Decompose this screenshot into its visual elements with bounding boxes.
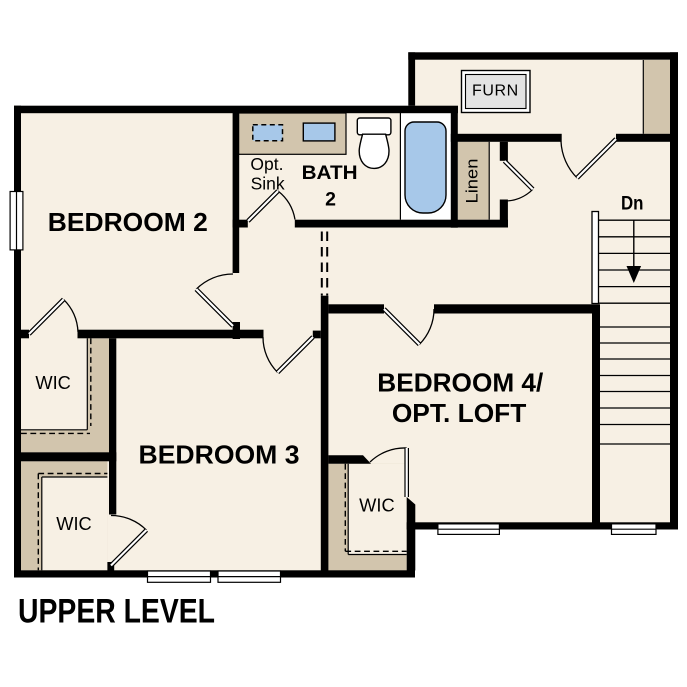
svg-text:OPT. LOFT: OPT. LOFT <box>392 398 527 428</box>
svg-text:BEDROOM 2: BEDROOM 2 <box>48 207 208 237</box>
svg-text:Opt.: Opt. <box>250 154 283 174</box>
svg-text:WIC: WIC <box>35 372 71 393</box>
svg-text:BEDROOM 3: BEDROOM 3 <box>139 440 300 470</box>
svg-text:Sink: Sink <box>251 174 285 194</box>
svg-text:BEDROOM 4/: BEDROOM 4/ <box>377 367 543 397</box>
svg-text:2: 2 <box>325 188 336 210</box>
svg-text:WIC: WIC <box>56 513 92 534</box>
svg-text:Dn: Dn <box>621 192 644 214</box>
svg-text:UPPER LEVEL: UPPER LEVEL <box>18 593 215 631</box>
svg-text:FURN: FURN <box>472 83 519 100</box>
svg-text:BATH: BATH <box>302 162 358 184</box>
svg-text:WIC: WIC <box>359 494 395 515</box>
svg-text:Linen: Linen <box>462 159 481 204</box>
